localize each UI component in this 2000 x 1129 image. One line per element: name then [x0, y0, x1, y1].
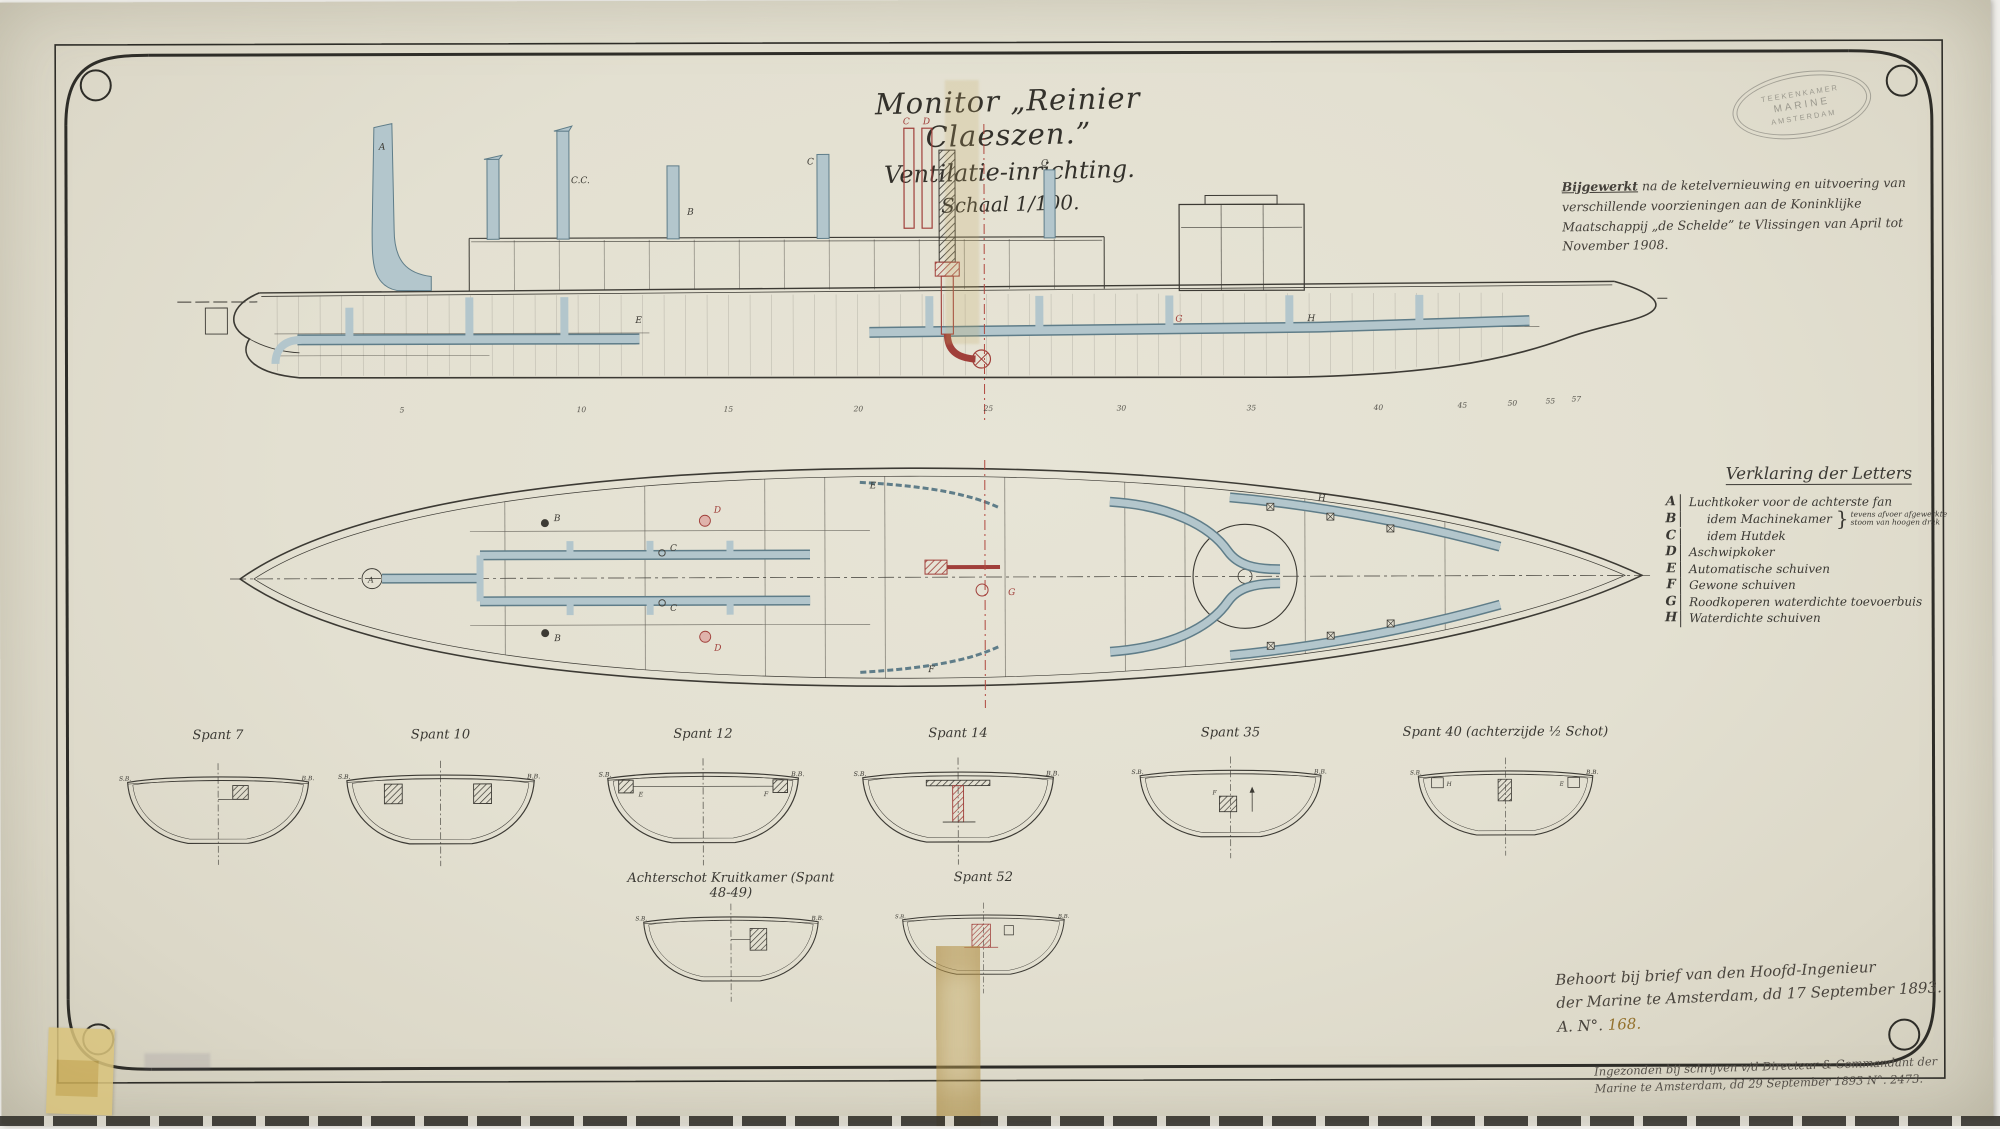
legend-row-e: E Automatische schuiven — [1662, 560, 1937, 577]
legend-row-h: H Waterdichte schuiven — [1662, 610, 1937, 627]
legend-row-d: D Aschwipkoker — [1662, 544, 1937, 561]
sb-label: S.B. — [338, 774, 351, 781]
cross-section-spant-40: H E S.B. B.B. — [1381, 752, 1631, 861]
faded-stamp-smudge — [144, 1053, 210, 1070]
behoort-number: 168. — [1607, 1014, 1641, 1033]
cross-section-kruitkamer: S.B. B.B. — [616, 898, 846, 1007]
legend-label: Waterdichte schuiven — [1681, 610, 1821, 627]
bb-label: B.B. — [790, 771, 804, 778]
letter-f: F — [1212, 789, 1218, 796]
cross-section-spant-35: F S.B. B.B. — [1106, 751, 1356, 864]
legend-label: Luchtkoker voor de achterste fan — [1681, 494, 1892, 511]
brace-glyph: } — [1836, 511, 1849, 528]
frame-numbers: 5 10 15 20 25 30 35 40 45 50 55 57 — [400, 394, 1582, 414]
plan-view: A B B C C E F H D D G — [170, 438, 1671, 732]
legend-letter: A — [1662, 494, 1681, 511]
legend-title: Verklaring der Letters — [1726, 464, 1912, 485]
bb-label: B.B. — [526, 773, 540, 780]
legend-label: Automatische schuiven — [1681, 560, 1830, 577]
sb-label: S.B. — [895, 914, 906, 920]
letter-e: E — [638, 791, 644, 798]
side-elevation-view: A C.C. B C C E H C D G 5 10 15 20 25 30 … — [169, 108, 1670, 432]
letter-e: E — [1559, 782, 1565, 788]
svg-text:15: 15 — [724, 405, 734, 414]
sb-label: S.B. — [854, 771, 867, 778]
svg-text:35: 35 — [1247, 403, 1257, 412]
photo-ruler-strip — [0, 1116, 2000, 1126]
svg-text:55: 55 — [1546, 397, 1556, 406]
superstructure — [469, 195, 1304, 292]
behoort-number-prefix: A. N°. — [1557, 1015, 1608, 1035]
section-label: Achterschot Kruitkamer (Spant 48-49) — [616, 870, 846, 901]
svg-text:5: 5 — [400, 406, 405, 415]
stamp-top-text: TEEKENKAMER — [1760, 82, 1839, 103]
tape-stain-bottom — [936, 946, 980, 1126]
svg-text:B: B — [553, 514, 561, 524]
legend-row-c: C idem Hutdek — [1662, 527, 1937, 544]
legend-rows: A Luchtkoker voor de achterste fan B ide… — [1662, 494, 1937, 627]
legend-label: Aschwipkoker — [1681, 544, 1775, 561]
legend-b-note: tevens afvoer afgewerkte stoom van hooge… — [1851, 510, 1948, 527]
bb-label: B.B. — [1585, 770, 1598, 776]
svg-text:C.C.: C.C. — [571, 176, 590, 186]
cross-section-spant-7: S.B. B.B. — [116, 758, 321, 871]
legend-b-note-line2: stoom van hoogen druk — [1851, 518, 1940, 527]
svg-text:25: 25 — [983, 404, 994, 413]
svg-text:G: G — [1008, 588, 1015, 598]
svg-text:50: 50 — [1508, 399, 1518, 408]
svg-text:D: D — [713, 644, 721, 654]
svg-text:B: B — [686, 208, 694, 218]
svg-text:H: H — [1317, 494, 1326, 504]
svg-text:57: 57 — [1572, 394, 1582, 403]
cross-section-spant-10: S.B. B.B. — [331, 755, 551, 872]
section-label: Spant 14 — [845, 726, 1070, 742]
svg-text:F: F — [927, 665, 935, 675]
svg-text:C: C — [1041, 159, 1048, 169]
legend-letter: F — [1662, 577, 1681, 594]
legend-letter: B — [1662, 511, 1681, 528]
svg-text:E: E — [634, 316, 642, 326]
sb-label: S.B. — [1131, 769, 1143, 776]
legend-letter: G — [1662, 594, 1681, 611]
legend-label: idem Machinekamer — [1681, 511, 1832, 528]
svg-text:A: A — [367, 576, 374, 585]
svg-text:H: H — [1306, 314, 1315, 324]
cross-section-spant-52: S.B. B.B. — [881, 898, 1086, 999]
stamp-bottom-text: AMSTERDAM — [1770, 107, 1837, 126]
legend-letter: C — [1662, 528, 1681, 545]
legend-row-g: G Roodkoperen waterdichte toevoerbuis — [1662, 593, 1937, 610]
sb-label: S.B. — [635, 917, 647, 923]
legend-label: Gewone schuiven — [1681, 577, 1796, 594]
section-label: Spant 10 — [330, 727, 550, 743]
bb-label: B.B. — [1045, 770, 1059, 777]
legend-letter: H — [1662, 610, 1681, 627]
legend: Verklaring der Letters A Luchtkoker voor… — [1662, 464, 1937, 627]
section-label: Spant 12 — [585, 726, 820, 742]
svg-text:C: C — [807, 157, 814, 167]
sb-label: S.B. — [1410, 770, 1422, 776]
svg-text:10: 10 — [577, 405, 587, 414]
bb-label: B.B. — [301, 775, 315, 782]
section-label: Spant 52 — [881, 870, 1086, 886]
bb-label: B.B. — [811, 916, 824, 922]
bb-label: B.B. — [1313, 769, 1327, 776]
legend-row-b: B idem Machinekamer } tevens afvoer afge… — [1662, 510, 1937, 528]
legend-letter: D — [1662, 544, 1681, 561]
svg-text:G: G — [1175, 315, 1182, 325]
svg-text:45: 45 — [1457, 401, 1468, 410]
svg-text:C: C — [903, 117, 910, 127]
svg-text:B: B — [553, 634, 561, 644]
legend-label: Roodkoperen waterdichte toevoerbuis — [1681, 593, 1922, 610]
drawing-sheet: Monitor „Reinier Claeszen.” Ventilatie-i… — [0, 0, 1993, 1124]
section-label: Spant 40 (achterzijde ½ Schot) — [1380, 724, 1630, 740]
svg-text:40: 40 — [1373, 403, 1384, 412]
section-label: Spant 35 — [1105, 725, 1355, 741]
svg-text:C: C — [670, 604, 677, 614]
plan-bulkheads — [470, 459, 1446, 702]
sb-label: S.B. — [119, 776, 131, 783]
tape-corner-left — [46, 1027, 115, 1115]
letter-f: F — [763, 791, 769, 798]
letter-h: H — [1446, 782, 1453, 788]
svg-text:D: D — [922, 117, 930, 127]
section-label: Spant 7 — [115, 728, 320, 744]
legend-row-f: F Gewone schuiven — [1662, 577, 1937, 594]
stamp-middle-text: MARINE — [1773, 95, 1831, 115]
svg-text:30: 30 — [1117, 404, 1127, 413]
svg-text:20: 20 — [853, 404, 864, 413]
svg-text:C: C — [670, 544, 677, 554]
tape-stain-top — [945, 80, 980, 344]
svg-text:E: E — [869, 481, 877, 491]
plan-red-details — [699, 460, 1000, 709]
svg-text:A: A — [378, 143, 386, 153]
svg-text:D: D — [713, 506, 721, 516]
bb-label: B.B. — [1057, 914, 1070, 920]
legend-letter: E — [1662, 561, 1681, 578]
sb-label: S.B. — [599, 772, 612, 779]
cross-section-spant-14: S.B. B.B. — [846, 752, 1071, 871]
legend-label: idem Hutdek — [1681, 527, 1786, 544]
cross-section-spant-12: E F S.B. B.B. — [586, 752, 821, 871]
